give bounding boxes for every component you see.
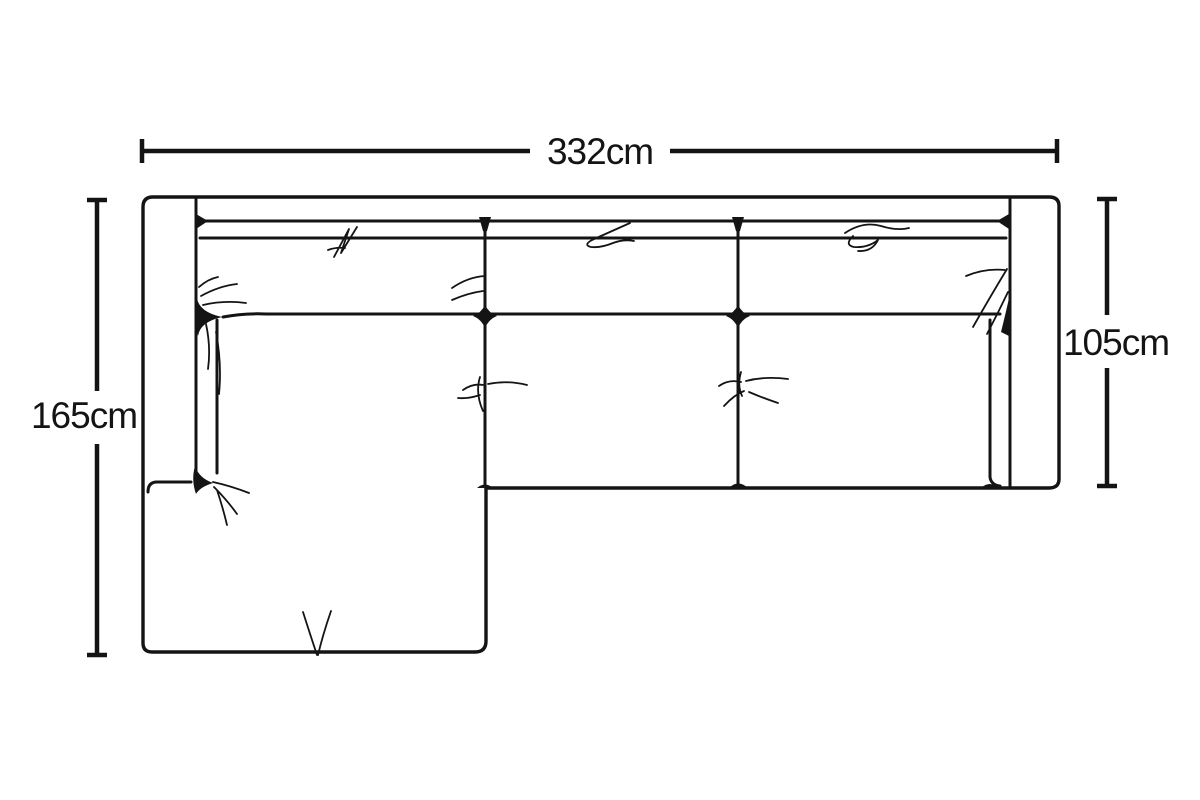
chaise-depth-label: 165cm [31,395,137,436]
sofa-outer-outline [143,197,1059,652]
top-dimension: 332cm [142,131,1057,172]
seat-tuft-left [458,377,527,411]
seat-tuft-right [719,372,788,406]
sofa-plan-svg: 332cm 165cm 105cm [0,0,1200,800]
chaise-back-wrinkle [452,276,485,300]
arm-bottom-wrinkles [213,482,249,525]
sofa-depth-label: 105cm [1063,322,1169,363]
right-dimension: 105cm [1063,199,1169,486]
back-fold-left [328,227,357,257]
fabric-wrinkles [199,223,1008,655]
chaise-front-v-wrinkle [303,611,331,655]
left-dimension: 165cm [31,200,137,655]
back-cushion-front-line [223,314,1000,317]
overall-width-label: 332cm [547,131,653,172]
back-fold-middle [587,223,634,247]
sofa-dimension-diagram: 332cm 165cm 105cm [0,0,1200,800]
right-corner-wrinkles [966,269,1008,334]
chaise-footrest-top-line [148,482,191,492]
crease-blobs [193,214,1009,494]
chaise-corner-wrinkles [199,277,246,394]
right-seat-edge [990,320,1000,486]
sofa-drawing [143,197,1059,655]
